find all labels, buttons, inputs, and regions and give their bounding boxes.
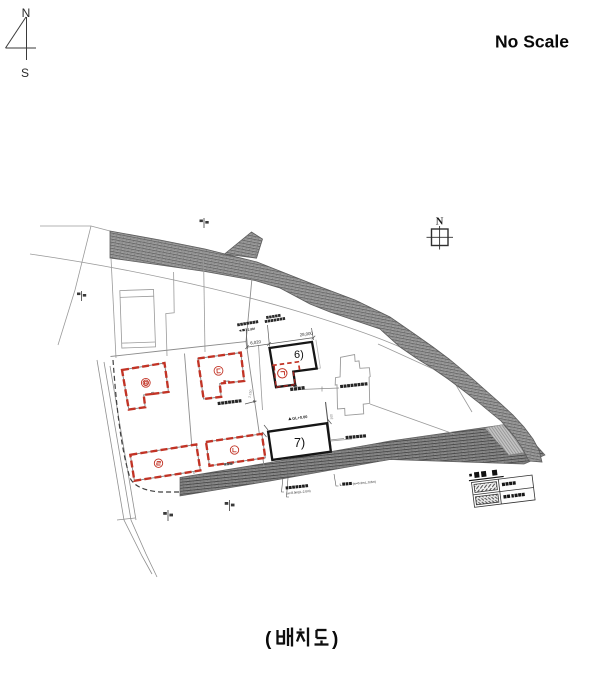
svg-text:28,000: 28,000 <box>299 331 313 338</box>
svg-text:(w=0.3m,L:0.6m): (w=0.3m,L:0.6m) <box>352 480 376 486</box>
svg-text:452: 452 <box>329 413 334 419</box>
svg-text:N: N <box>22 6 31 20</box>
svg-text:N: N <box>436 217 444 228</box>
svg-text:6,020: 6,020 <box>250 339 262 346</box>
svg-text:L: L <box>340 483 342 487</box>
svg-text:7): 7) <box>294 436 305 450</box>
svg-text:2,150: 2,150 <box>248 389 253 398</box>
svg-text:(w=8.0m)(L:2.0m): (w=8.0m)(L:2.0m) <box>286 489 311 496</box>
svg-text:No Scale: No Scale <box>495 32 569 52</box>
svg-text:S: S <box>21 66 29 80</box>
svg-text:(: ( <box>265 629 272 650</box>
svg-text:6): 6) <box>294 349 304 361</box>
svg-text:): ) <box>332 629 338 650</box>
svg-text:+2.8M: +2.8M <box>245 327 255 332</box>
svg-text:GL+0.00: GL+0.00 <box>292 414 308 421</box>
